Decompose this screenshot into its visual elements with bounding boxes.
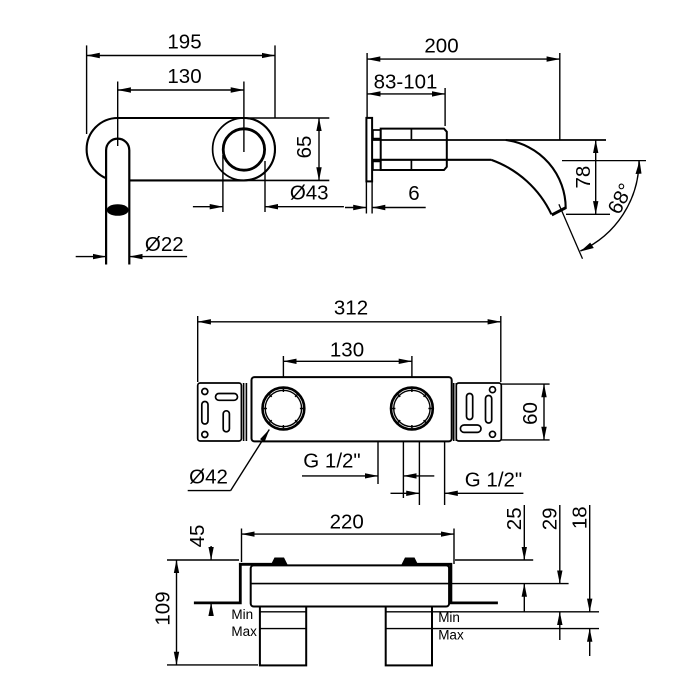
svg-text:Ø43: Ø43 [290,182,329,205]
svg-text:29: 29 [538,507,561,530]
svg-text:220: 220 [330,510,364,533]
svg-text:312: 312 [334,297,368,320]
svg-text:195: 195 [167,31,201,54]
svg-text:G 1/2": G 1/2" [465,469,522,492]
svg-text:Min: Min [438,610,460,625]
svg-text:60: 60 [519,402,542,425]
svg-text:45: 45 [186,525,209,548]
svg-text:130: 130 [167,65,201,88]
svg-text:Max: Max [438,628,464,643]
svg-text:25: 25 [503,507,526,530]
svg-text:G 1/2": G 1/2" [303,450,360,473]
svg-text:18: 18 [568,506,591,529]
svg-text:83-101: 83-101 [374,70,438,93]
svg-text:6: 6 [408,182,419,205]
svg-text:Ø22: Ø22 [145,233,184,256]
svg-text:200: 200 [424,35,458,58]
svg-text:Max: Max [231,624,257,639]
svg-text:78: 78 [572,166,595,189]
svg-text:109: 109 [151,591,174,625]
svg-text:Ø42: Ø42 [189,466,228,489]
svg-text:Min: Min [231,607,253,622]
svg-text:65: 65 [293,136,316,159]
svg-text:130: 130 [330,339,364,362]
svg-text:68°: 68° [603,180,638,218]
